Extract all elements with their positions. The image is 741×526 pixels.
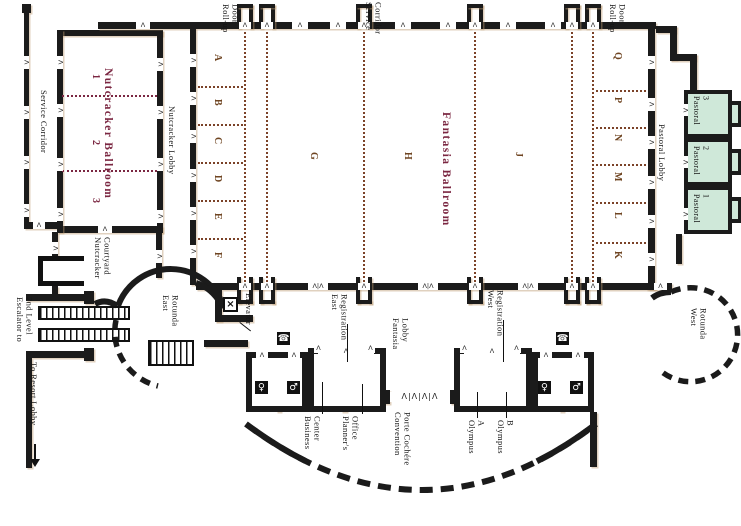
east-registration-label: East Registration: [329, 294, 349, 340]
door-swing-icon: [440, 22, 456, 29]
west-registration-room: [454, 348, 532, 412]
escalator-line: 2nd Level: [24, 297, 34, 342]
section-k: K: [612, 251, 623, 259]
airwall-track: [592, 32, 594, 282]
pastoral-name: Pastoral: [692, 194, 701, 223]
service-corridor-left-label: Service Corridor: [38, 90, 48, 153]
fantasia-lobby-line: Fantasia: [390, 318, 400, 350]
west-rotunda-line: Rotunda: [698, 308, 708, 340]
porte-cochere-line: Convention: [392, 412, 402, 466]
nutcracker-section-1: 1: [90, 74, 101, 79]
east-registration-line: Registration: [339, 294, 349, 340]
door-swing-icon: [292, 22, 308, 29]
restroom-women-icon: ♀: [538, 381, 551, 394]
rollup-door-line: Door: [617, 4, 627, 33]
airwall-gap: [261, 283, 273, 290]
airwall-gap: [469, 283, 481, 290]
door-swing-icon: [52, 242, 58, 254]
door-swing-icon: [366, 344, 375, 353]
door-swing-icon: [24, 106, 29, 119]
door-swing-icon: [512, 344, 521, 353]
door-swing-icon: [288, 352, 300, 358]
door-swing-icon: [57, 56, 63, 69]
west-registration-line: West: [485, 290, 495, 336]
rollup-door-line: Roll-up: [220, 4, 230, 33]
door-swing-icon: [460, 344, 469, 353]
door-swing-icon: [545, 22, 561, 29]
door-swing-icon: [648, 215, 655, 228]
to-resort-lobby-label: To Resort Lobby: [28, 362, 38, 425]
escalator-up: [38, 306, 130, 320]
door-swing-icon: [190, 54, 196, 67]
wall: [84, 291, 94, 304]
airwall-pocket: [467, 4, 483, 8]
pastoral-name: Pastoral: [692, 146, 701, 175]
nutcracker-lobby-label: Nutcracker Lobby: [166, 106, 176, 174]
airwall-track: [266, 32, 268, 282]
wall: [26, 294, 88, 301]
door-swing-icon: [190, 92, 196, 105]
down-arrow-icon: [34, 444, 36, 460]
door-swing-icon: [256, 352, 268, 358]
phone-icon: ☎: [277, 332, 290, 345]
restroom-women-icon: ♀: [255, 381, 268, 394]
business-center-line: Center: [312, 416, 322, 449]
section-q: Q: [612, 52, 623, 60]
escalator-label: Escalator to 2nd Level: [14, 297, 34, 342]
section-p: P: [612, 97, 623, 103]
airwall-track: [198, 200, 243, 202]
door-swing-icon: [190, 130, 196, 143]
fantasia-lobby-label: Fantasia Lobby: [390, 318, 410, 350]
restroom-men-icon: ♂: [570, 381, 583, 394]
door-swing-icon: [648, 136, 655, 149]
door-swing-icon: [500, 22, 516, 29]
airwall-track: [571, 32, 573, 282]
phone-icon: ☎: [556, 332, 569, 345]
door-swing-icon: [157, 106, 163, 119]
airwall-pocket: [259, 4, 275, 8]
door-swing-icon: [308, 283, 328, 290]
airwall-gap: [566, 22, 578, 29]
airwall-pocket: [259, 300, 275, 304]
door-swing-icon: [136, 22, 150, 29]
airwall-pocket: [467, 300, 483, 304]
door-swing-icon: [24, 56, 29, 69]
airwall-track: [363, 32, 365, 282]
door-swing-icon: [190, 169, 196, 182]
airwall-track: [244, 32, 246, 282]
door-swing-icon: [157, 58, 163, 71]
rotunda-stairs: [148, 340, 194, 366]
section-g: G: [308, 152, 319, 160]
nutcracker-courtyard-label: Nutcracker Courtyard: [92, 237, 112, 279]
service-corridor-line: Service: [363, 2, 373, 34]
east-rotunda-line: East: [160, 295, 170, 327]
airwall-gap: [587, 22, 599, 29]
floor-plan: Service Corridor Nutcracker Ballroom 1 2…: [0, 0, 741, 526]
wall: [690, 54, 697, 92]
airwall-gap: [358, 283, 370, 290]
door-swing-icon: [682, 156, 688, 168]
door-swing-icon: [418, 283, 438, 290]
courtyard-line: Nutcracker: [92, 237, 102, 279]
door-swing-icon: [540, 352, 552, 358]
fantasia-lobby-line: Lobby: [400, 318, 410, 350]
airwall-gap: [261, 22, 273, 29]
door-swing-icon: [98, 226, 112, 233]
courtyard-line: Courtyard: [102, 237, 112, 279]
door-swing-icon: [682, 208, 688, 220]
wall: [84, 348, 94, 361]
courtyard-alcove: [38, 256, 84, 286]
pastoral-lobby-label: Pastoral Lobby: [656, 124, 666, 181]
nutcracker-ballroom-title: Nutcracker Ballroom: [101, 68, 114, 199]
nutcracker-section-3: 3: [90, 198, 101, 203]
airwall-pocket: [356, 300, 372, 304]
door-swing-icon: [648, 253, 655, 266]
airwall-pocket: [585, 300, 601, 304]
section-f: F: [212, 252, 223, 258]
west-registration-label: West Registration: [485, 290, 505, 336]
airwall-pocket: [564, 300, 580, 304]
restroom-men-icon: ♂: [287, 381, 300, 394]
convention-porte-cochere-label: Convention Porte Cochére: [392, 412, 412, 466]
rollup-door-label-left: Roll-up Door: [220, 4, 240, 33]
planners-office-label: Planner's Office: [340, 416, 360, 450]
airwall-track: [596, 164, 646, 166]
rollup-door-label-right: Roll-up Door: [607, 4, 627, 33]
olympus-b-line: Olympus: [495, 420, 505, 454]
airwall-gap: [587, 283, 599, 290]
airwall-track: [474, 32, 476, 282]
escalator-line: Escalator to: [14, 297, 24, 342]
section-d: D: [212, 175, 223, 182]
pastoral-2-label: Pastoral 2: [692, 146, 710, 175]
planners-office-line: Planner's: [340, 416, 350, 450]
business-center-leader: [322, 382, 323, 414]
door-swing-icon: [648, 98, 655, 111]
pastoral-number: 2: [701, 146, 710, 175]
porte-cochere-arc: [228, 406, 618, 521]
airwall-track: [198, 86, 243, 88]
airwall-pocket: [564, 4, 580, 8]
olympus-a-line: A: [476, 420, 486, 454]
airwall-gap: [469, 22, 481, 29]
wall: [57, 30, 163, 36]
airwall-track: [198, 162, 243, 164]
door-swing-icon: [682, 104, 688, 116]
west-rotunda-line: West: [688, 308, 698, 340]
door-swing-icon: [156, 250, 162, 263]
porte-cochere-line: Porte Cochére: [402, 412, 412, 466]
east-rotunda-line: Rotunda: [170, 295, 180, 327]
airwall-track: [596, 127, 646, 129]
planners-office-line: Office: [350, 416, 360, 450]
nutcracker-section-2: 2: [90, 140, 101, 145]
door-swing-icon: [390, 392, 450, 402]
business-center-line: Business: [302, 416, 312, 449]
olympus-b-label: Olympus B: [495, 420, 515, 454]
airwall-track: [198, 124, 243, 126]
section-e: E: [212, 213, 223, 220]
airwall-track: [198, 238, 243, 240]
business-center-label: Business Center: [302, 416, 322, 449]
wall: [26, 351, 88, 358]
door-swing-icon: [57, 158, 63, 171]
door-swing-icon: [24, 204, 29, 217]
service-corridor-line: Corridor: [373, 2, 383, 34]
airwall-track: [596, 202, 646, 204]
section-j: J: [513, 152, 524, 157]
rollup-door-line: Roll-up: [607, 4, 617, 33]
door-swing-icon: [157, 158, 163, 171]
door-swing-icon: [57, 208, 63, 221]
airwall-track: [596, 242, 646, 244]
planners-office-leader: [362, 384, 363, 414]
door-swing-icon: [157, 210, 163, 223]
section-a: A: [212, 54, 223, 61]
service-corridor-top-label: Service Corridor: [363, 2, 383, 34]
door-swing-icon: [314, 344, 323, 353]
airwall-pocket: [585, 4, 601, 8]
section-l: L: [612, 212, 623, 219]
door-swing-icon: [330, 22, 346, 29]
olympus-a-line: Olympus: [466, 420, 476, 454]
door-swing-icon: [190, 245, 196, 258]
olympus-a-leader: [477, 392, 478, 418]
rollup-door-line: Door: [230, 4, 240, 33]
olympus-a-label: Olympus A: [466, 420, 486, 454]
down-arrow-icon: [30, 459, 40, 467]
airwall-track: [596, 90, 646, 92]
pastoral-name: Pastoral: [692, 96, 701, 125]
section-c: C: [212, 137, 223, 144]
pastoral-number: 1: [701, 194, 710, 223]
door-swing-icon: [57, 104, 63, 117]
door-swing-icon: [518, 283, 538, 290]
airwall-gap: [239, 22, 251, 29]
west-registration-line: Registration: [495, 290, 505, 336]
elevator-icon: ×: [223, 297, 238, 312]
airwall-gap: [566, 283, 578, 290]
wall: [676, 234, 682, 264]
olympus-b-leader: [506, 392, 507, 418]
pastoral-3-label: Pastoral 3: [692, 96, 710, 125]
door-swing-icon: [648, 176, 655, 189]
west-rotunda-label: West Rotunda: [688, 308, 708, 340]
section-n: N: [612, 134, 623, 141]
door-swing-icon: [395, 22, 411, 29]
door-swing-icon: [654, 283, 667, 290]
door-swing-icon: [190, 207, 196, 220]
door-swing-icon: [33, 222, 45, 229]
airwall-gap: [239, 283, 251, 290]
east-rotunda-label: East Rotunda: [160, 295, 180, 327]
escalator-down: [38, 328, 130, 342]
elevator-label: Elevator: [243, 293, 253, 325]
pastoral-1-label: Pastoral 1: [692, 194, 710, 223]
door-swing-icon: [24, 156, 29, 169]
east-registration-line: East: [329, 294, 339, 340]
pastoral-number: 3: [701, 96, 710, 125]
fantasia-ballroom-title: Fantasia Ballroom: [439, 112, 452, 227]
door-swing-icon: [572, 352, 584, 358]
olympus-b-line: B: [505, 420, 515, 454]
door-swing-icon: [648, 56, 655, 69]
section-b: B: [212, 99, 223, 106]
section-m: M: [612, 172, 623, 181]
section-h: H: [402, 152, 413, 160]
